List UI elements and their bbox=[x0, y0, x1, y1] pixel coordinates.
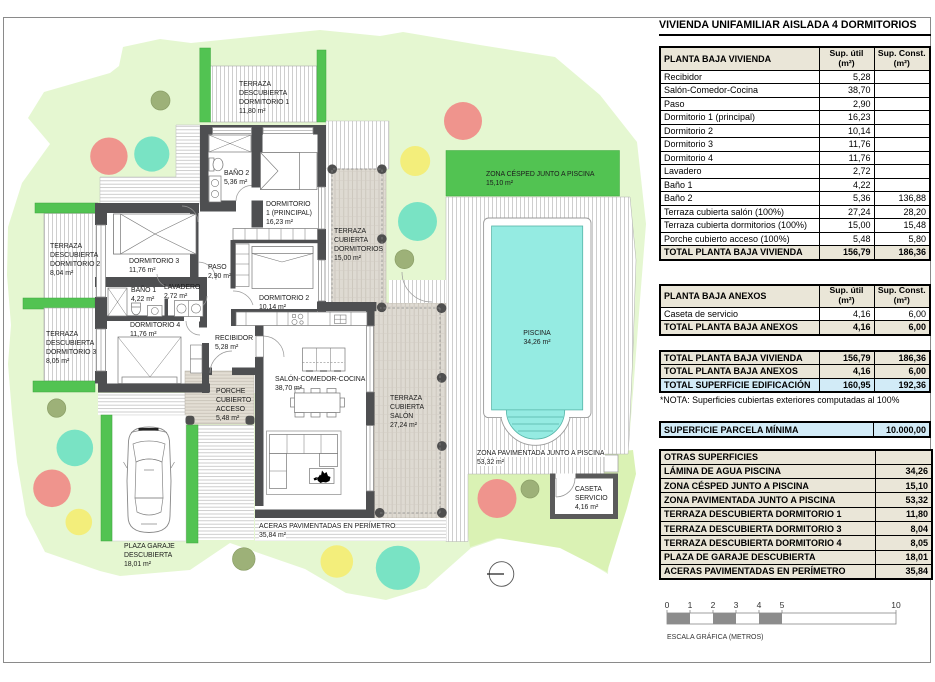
svg-text:3: 3 bbox=[734, 600, 739, 610]
svg-text:2: 2 bbox=[711, 600, 716, 610]
svg-text:5: 5 bbox=[780, 600, 785, 610]
svg-text:ESCALA GRÁFICA (METROS): ESCALA GRÁFICA (METROS) bbox=[667, 632, 763, 641]
svg-text:1: 1 bbox=[688, 600, 693, 610]
svg-text:10: 10 bbox=[891, 600, 901, 610]
svg-text:0: 0 bbox=[665, 600, 670, 610]
svg-text:4: 4 bbox=[757, 600, 762, 610]
